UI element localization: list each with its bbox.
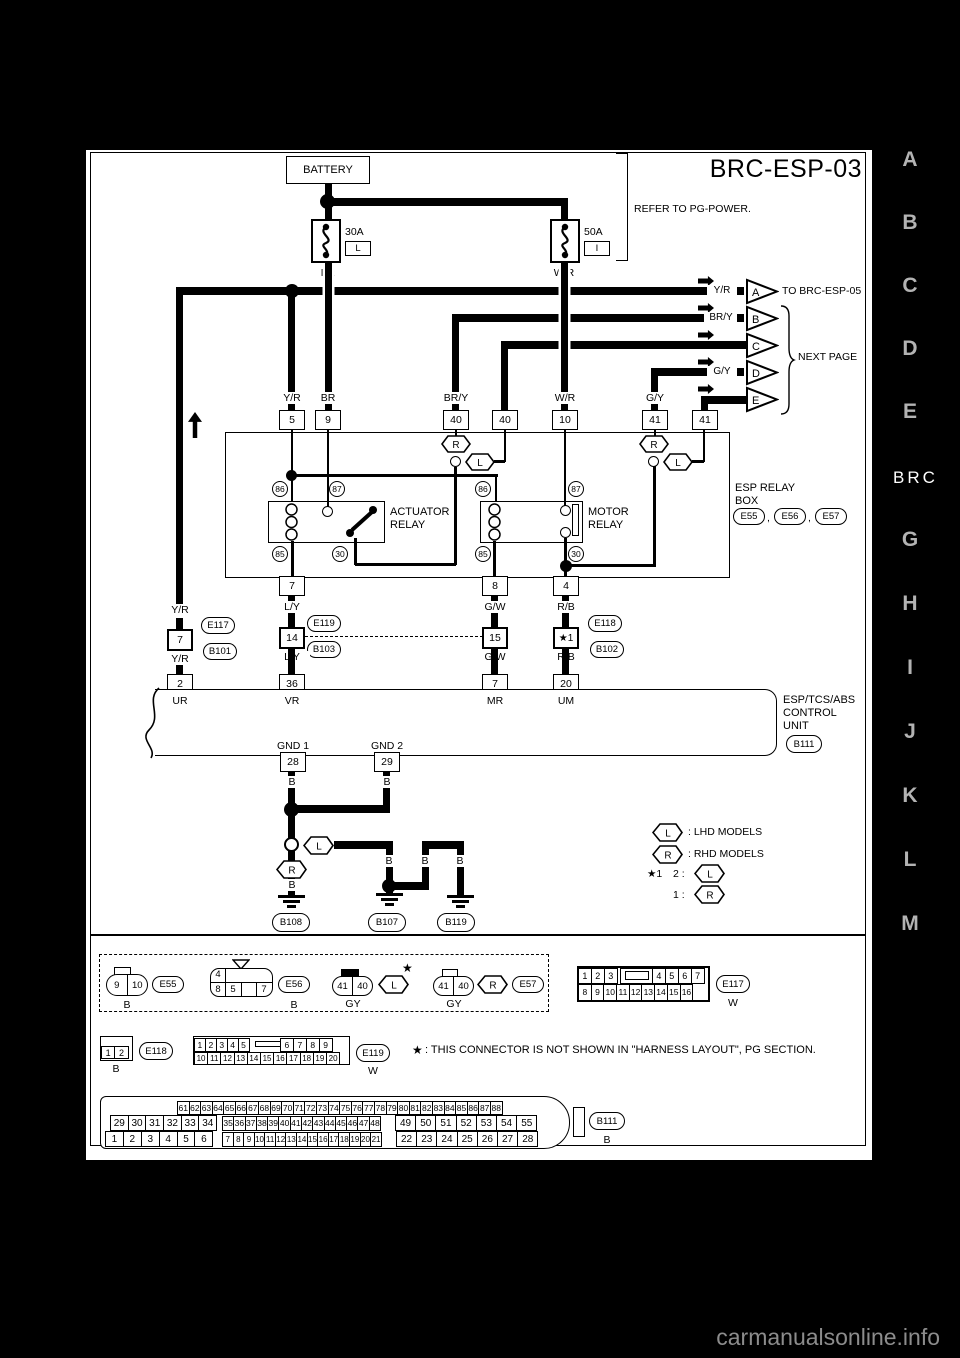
wire bbox=[495, 474, 497, 502]
relay-pin-85: 85 bbox=[272, 546, 288, 562]
next-page-label: NEXT PAGE bbox=[798, 351, 857, 363]
gnd-label: GND 2 bbox=[365, 740, 409, 752]
label-line: UNIT bbox=[783, 720, 809, 732]
pin-cell: 24 bbox=[436, 1131, 457, 1147]
pin-cell: 5 bbox=[665, 968, 679, 985]
wire-color-label: B bbox=[281, 776, 303, 788]
svg-text:L: L bbox=[665, 829, 671, 840]
connector-id: E55 bbox=[152, 976, 184, 993]
ground-icon bbox=[456, 905, 465, 908]
svg-text:R: R bbox=[664, 851, 671, 862]
watermark: carmanualsonline.info bbox=[650, 1324, 940, 1351]
pin-cell: 3 bbox=[604, 968, 618, 985]
label-line: RELAY bbox=[588, 519, 623, 531]
pin-cell: 50 bbox=[415, 1115, 436, 1131]
relay-pin-30: 30 bbox=[332, 546, 348, 562]
wire bbox=[325, 263, 332, 410]
wire bbox=[565, 564, 656, 567]
rhd-marker-icon: R bbox=[276, 860, 308, 879]
connector-junction bbox=[648, 456, 659, 467]
wire-color-label: Y/R bbox=[274, 392, 310, 404]
ground-icon bbox=[376, 893, 403, 896]
wire-color-label: B bbox=[414, 855, 436, 867]
pin-box: 8 bbox=[482, 576, 508, 596]
wire bbox=[561, 206, 568, 220]
svg-text:L: L bbox=[675, 458, 681, 469]
pin-cell: 1 bbox=[578, 968, 592, 985]
pin-cell: 30 bbox=[128, 1115, 147, 1131]
pin-box: 40 bbox=[443, 410, 469, 430]
pin-cell: 40 bbox=[453, 977, 473, 995]
cu-pin-label: VR bbox=[279, 695, 305, 707]
ground-id: B119 bbox=[437, 913, 475, 932]
pin-row: 12 bbox=[102, 1046, 129, 1059]
relay-contact-icon bbox=[322, 506, 333, 517]
wire bbox=[564, 430, 566, 506]
pin-cell: 32 bbox=[163, 1115, 182, 1131]
pin-cell: 13 bbox=[234, 1052, 248, 1065]
wire bbox=[653, 466, 656, 566]
offpage-connector-d: D bbox=[745, 359, 779, 386]
pin-cell: 11 bbox=[207, 1052, 221, 1065]
connector-id: E55 bbox=[733, 508, 765, 525]
label-line: BOX bbox=[735, 495, 758, 507]
wire-color-label: G/Y bbox=[707, 366, 737, 378]
sidebar-letter: J bbox=[888, 720, 932, 784]
ground-icon bbox=[385, 903, 394, 906]
pin-row: 8910111213141516 bbox=[579, 984, 693, 1001]
ground-icon bbox=[278, 895, 305, 898]
sidebar-letter: G bbox=[888, 528, 932, 592]
relay-pin-85: 85 bbox=[475, 546, 491, 562]
actuator-relay-label: ACTUATOR RELAY bbox=[390, 506, 450, 532]
connector-id: E117 bbox=[716, 975, 750, 993]
pin-cell: 2 bbox=[591, 968, 605, 985]
ground-icon bbox=[381, 898, 398, 901]
pin-cell: 27 bbox=[497, 1131, 518, 1147]
pin-cell: 6 bbox=[194, 1131, 213, 1147]
connector-color: GY bbox=[339, 998, 367, 1010]
switch-pivot bbox=[346, 529, 354, 537]
svg-text:L: L bbox=[391, 981, 397, 992]
svg-text:R: R bbox=[706, 891, 713, 902]
lhd-marker-icon: L bbox=[378, 975, 410, 994]
pin-row: 22232425262728 bbox=[397, 1131, 538, 1147]
lhd-marker-icon: L bbox=[465, 453, 495, 471]
pin-cell: 55 bbox=[516, 1115, 537, 1131]
fuse-slot-box: I bbox=[584, 241, 610, 256]
connector-pair-line bbox=[305, 636, 483, 637]
pin-cell: 31 bbox=[145, 1115, 164, 1131]
pin-cell: 14 bbox=[247, 1052, 261, 1065]
sidebar-index-top: ABCDE bbox=[888, 148, 932, 463]
pin-cell: 3 bbox=[141, 1131, 160, 1147]
pin-box: 7 bbox=[279, 576, 305, 596]
pin-cell: 52 bbox=[456, 1115, 477, 1131]
rhd-marker-icon: R bbox=[441, 435, 471, 453]
offpage-connector-a: A bbox=[745, 278, 779, 305]
connector-id: E56 bbox=[278, 976, 310, 993]
connector-id: E118 bbox=[139, 1042, 173, 1060]
sidebar-index-bottom: GHIJKLM bbox=[888, 528, 932, 976]
connector-id: B111 bbox=[589, 1112, 625, 1130]
lhd-marker-icon: L bbox=[303, 836, 335, 855]
legend-opt1: 1 : bbox=[673, 889, 685, 901]
fuse-slot-box: L bbox=[345, 241, 371, 256]
pin-cell: 19 bbox=[313, 1052, 327, 1065]
fuse-50a-icon bbox=[550, 219, 580, 263]
relay-pin-86: 86 bbox=[272, 481, 288, 497]
lhd-marker-icon: L bbox=[663, 453, 693, 471]
pin-box: 28 bbox=[280, 752, 306, 772]
pin-cell: 34 bbox=[198, 1115, 217, 1131]
wire-color-label: BR/Y bbox=[704, 312, 738, 324]
pin-cell: 6 bbox=[280, 1038, 294, 1052]
pin-cell: 20 bbox=[326, 1052, 340, 1065]
pin-cell: 26 bbox=[477, 1131, 498, 1147]
pin-cell: 10 bbox=[127, 975, 148, 995]
connector-id: E119 bbox=[356, 1044, 390, 1062]
pin-row: 293031323334 bbox=[111, 1115, 217, 1131]
wire-color-label: G/W bbox=[477, 601, 513, 613]
svg-text:R: R bbox=[650, 440, 657, 451]
pin-cell: 2 bbox=[123, 1131, 142, 1147]
svg-text:E: E bbox=[752, 395, 759, 407]
pin-cell: 51 bbox=[435, 1115, 456, 1131]
wire-color-label: W/R bbox=[547, 392, 583, 404]
battery-box: BATTERY bbox=[286, 156, 370, 184]
pin-cell: 9 bbox=[319, 1038, 333, 1052]
pin-row: 3536373839404142434445464748 bbox=[223, 1116, 381, 1131]
pin-cell: 7 bbox=[293, 1038, 307, 1052]
wire-end-icon bbox=[737, 314, 744, 322]
connector-junction bbox=[450, 456, 461, 467]
svg-text:R: R bbox=[288, 866, 295, 877]
wire bbox=[325, 206, 332, 220]
relay-pin-30: 30 bbox=[568, 546, 584, 562]
pin-cell: 40 bbox=[352, 977, 372, 995]
motor-relay-label: MOTOR RELAY bbox=[588, 506, 629, 532]
wire-color-label: BR bbox=[310, 392, 346, 404]
keyway-cell bbox=[255, 1041, 281, 1047]
wire bbox=[501, 341, 508, 410]
svg-text:A: A bbox=[752, 287, 760, 299]
connector-color: B bbox=[286, 999, 302, 1011]
break-squiggle-icon bbox=[141, 686, 163, 760]
pin-cell: 41 bbox=[333, 977, 352, 995]
ground-icon bbox=[283, 900, 300, 903]
pin-cell: 16 bbox=[273, 1052, 287, 1065]
wire bbox=[291, 430, 293, 502]
connector-color: B bbox=[598, 1134, 616, 1146]
pin-cell: 28 bbox=[517, 1131, 538, 1147]
gnd-label: GND 1 bbox=[271, 740, 315, 752]
connector-e55-face: 9 10 bbox=[106, 974, 148, 996]
pin-cell: 1 bbox=[105, 1131, 124, 1147]
wire bbox=[564, 538, 567, 578]
connector-id: B103 bbox=[307, 641, 341, 658]
pin-row: 789101112131415161718192021 bbox=[223, 1132, 382, 1147]
pin-box: 40 bbox=[492, 410, 518, 430]
pin-box: 4 bbox=[553, 576, 579, 596]
wire-color-label: L/Y bbox=[274, 601, 310, 613]
pin-cell: 15 bbox=[260, 1052, 274, 1065]
offpage-connector-e: E bbox=[745, 386, 779, 413]
offpage-connector-c: C bbox=[745, 332, 779, 359]
svg-text:D: D bbox=[752, 368, 760, 380]
legend-rhd: : RHD MODELS bbox=[688, 848, 764, 860]
grid-line bbox=[241, 982, 242, 997]
wire bbox=[422, 845, 429, 890]
pin-row: 6789 bbox=[281, 1038, 333, 1052]
star-marker: ★ bbox=[412, 1043, 423, 1057]
relay-coil-icon bbox=[284, 503, 299, 541]
wire bbox=[501, 341, 747, 349]
wire bbox=[355, 563, 456, 566]
switch-tip bbox=[369, 506, 377, 514]
wire-color-label: BR/Y bbox=[434, 392, 478, 404]
footnote: : THIS CONNECTOR IS NOT SHOWN IN "HARNES… bbox=[425, 1044, 816, 1057]
rhd-marker-icon: R bbox=[639, 435, 669, 453]
connector-color: W bbox=[365, 1065, 381, 1077]
pin-cell: 5 bbox=[177, 1131, 196, 1147]
svg-text:L: L bbox=[316, 842, 322, 853]
pin-cell: 9 bbox=[107, 975, 127, 995]
wire bbox=[291, 541, 294, 578]
wire bbox=[701, 396, 708, 410]
pin-box: 5 bbox=[279, 410, 305, 430]
pin-cell: 12 bbox=[220, 1052, 234, 1065]
wire bbox=[291, 474, 498, 477]
wire bbox=[458, 314, 707, 322]
wire-end-icon bbox=[737, 368, 744, 376]
connector-id: B102 bbox=[590, 641, 624, 658]
pin-box: 41 bbox=[692, 410, 718, 430]
relay-pin-86: 86 bbox=[475, 481, 491, 497]
pin-cell: 53 bbox=[476, 1115, 497, 1131]
wire-color-label: Y/R bbox=[162, 604, 198, 616]
pin-cell: 5 bbox=[238, 1038, 250, 1052]
pin-cell: 49 bbox=[395, 1115, 416, 1131]
pin-cell: 33 bbox=[181, 1115, 200, 1131]
sidebar-letter: H bbox=[888, 592, 932, 656]
pin-box: 7 bbox=[167, 629, 193, 651]
svg-text:R: R bbox=[489, 981, 496, 992]
control-unit-box bbox=[155, 689, 777, 756]
wire bbox=[327, 430, 329, 508]
brace-icon bbox=[778, 304, 796, 416]
svg-text:R: R bbox=[452, 440, 459, 451]
connector-id: E119 bbox=[307, 615, 341, 632]
wire bbox=[562, 649, 569, 676]
comma: , bbox=[808, 512, 811, 524]
pin-cell: 48 bbox=[369, 1116, 381, 1131]
pin-cell: 17 bbox=[286, 1052, 300, 1065]
sidebar-letter: A bbox=[888, 148, 932, 211]
ground-id: B107 bbox=[368, 913, 406, 932]
pin-cell: 8 bbox=[306, 1038, 320, 1052]
fuse-30a-icon bbox=[311, 219, 341, 263]
connector-face: 41 40 bbox=[332, 976, 373, 996]
pin-row: 1011121314151617181920 bbox=[195, 1052, 340, 1065]
connector-color: W bbox=[724, 997, 742, 1009]
wire bbox=[176, 295, 183, 605]
wire-color-label: B bbox=[376, 776, 398, 788]
page-title: BRC-ESP-03 bbox=[540, 155, 862, 184]
lhd-marker-icon: L bbox=[652, 823, 684, 842]
pin-cell: 5 bbox=[226, 984, 240, 995]
refer-bracket bbox=[616, 153, 628, 261]
sidebar-letter: C bbox=[888, 274, 932, 337]
refer-note: REFER TO PG-POWER. bbox=[634, 203, 751, 215]
pin-cell: 88 bbox=[490, 1101, 503, 1115]
manual-page: BRC-ESP-03 ABCDE BRC GHIJKLM carmanualso… bbox=[0, 0, 960, 1358]
pin-cell: 41 bbox=[434, 977, 453, 995]
cu-pin-label: UR bbox=[167, 695, 193, 707]
wire-end-icon bbox=[737, 287, 744, 295]
legend-opt2: 2 : bbox=[673, 868, 685, 880]
wire bbox=[493, 541, 496, 578]
pin-cell: 22 bbox=[396, 1131, 417, 1147]
control-unit-name: ESP/TCS/ABS CONTROL UNIT bbox=[783, 694, 855, 733]
sidebar-letter: K bbox=[888, 784, 932, 848]
pin-cell: 1 bbox=[101, 1046, 116, 1059]
connector-color: GY bbox=[440, 998, 468, 1010]
offpage-destination: TO BRC-ESP-05 bbox=[782, 285, 861, 297]
cu-pin-label: UM bbox=[553, 695, 579, 707]
connector-id: E57 bbox=[512, 976, 544, 993]
wire bbox=[176, 287, 707, 295]
ground-icon bbox=[447, 895, 474, 898]
legend-star: ★1 bbox=[647, 868, 662, 880]
keyway-cell bbox=[620, 968, 654, 985]
label-line: ESP/TCS/ABS bbox=[783, 694, 855, 706]
sidebar-section-label: BRC bbox=[893, 468, 938, 488]
svg-text:L: L bbox=[477, 458, 483, 469]
label-line: CONTROL bbox=[783, 707, 837, 719]
label-line: MOTOR bbox=[588, 506, 629, 518]
connector-id: B101 bbox=[203, 643, 237, 660]
lhd-marker-icon: L bbox=[694, 864, 726, 883]
wire-color-label: B bbox=[378, 855, 400, 867]
pin-cell: 4 bbox=[652, 968, 666, 985]
connector-latch bbox=[573, 1107, 585, 1137]
wire bbox=[703, 430, 705, 462]
section-divider bbox=[90, 934, 866, 936]
pin-box: 29 bbox=[374, 752, 400, 772]
pin-cell: 25 bbox=[457, 1131, 478, 1147]
rhd-marker-icon: R bbox=[694, 885, 726, 904]
wire bbox=[292, 805, 390, 813]
comma: , bbox=[767, 512, 770, 524]
label-line: ACTUATOR bbox=[390, 506, 450, 518]
pin-box: 15 bbox=[482, 627, 508, 649]
relay-pin-87: 87 bbox=[329, 481, 345, 497]
wire-color-label: B bbox=[281, 879, 303, 891]
rhd-marker-icon: R bbox=[477, 975, 509, 994]
sidebar-letter: B bbox=[888, 211, 932, 274]
wire bbox=[176, 618, 183, 629]
pin-box: 10 bbox=[552, 410, 578, 430]
fuse-amp-label: 30A bbox=[345, 226, 364, 238]
pin-cell: 7 bbox=[257, 984, 271, 995]
relay-contact-icon bbox=[560, 505, 571, 516]
legend-lhd: : LHD MODELS bbox=[688, 826, 762, 838]
cu-pin-label: MR bbox=[482, 695, 508, 707]
wire-color-label: B bbox=[449, 855, 471, 867]
pin-cell: 21 bbox=[370, 1132, 382, 1147]
relay-box-name: ESP RELAY BOX bbox=[735, 482, 795, 508]
pin-cell: 10 bbox=[194, 1052, 208, 1065]
pin-box: 41 bbox=[642, 410, 668, 430]
pin-cell: 29 bbox=[110, 1115, 129, 1131]
junction-dot bbox=[285, 284, 299, 298]
pin-row: 123 bbox=[579, 968, 618, 985]
connector-color: B bbox=[119, 999, 135, 1011]
wire bbox=[325, 198, 568, 206]
pin-cell: 8 bbox=[211, 984, 225, 995]
contact-bar-icon bbox=[572, 504, 579, 536]
wire-color-label: R/B bbox=[548, 601, 584, 613]
pin-cell: 2 bbox=[114, 1046, 129, 1059]
pin-cell: 54 bbox=[496, 1115, 517, 1131]
offpage-connector-b: B bbox=[745, 305, 779, 332]
wire-color-label: G/Y bbox=[637, 392, 673, 404]
wire bbox=[651, 368, 707, 376]
sidebar-letter: L bbox=[888, 848, 932, 912]
ground-id: B108 bbox=[272, 913, 310, 932]
junction-dot bbox=[284, 802, 299, 817]
pin-cell: 23 bbox=[416, 1131, 437, 1147]
sidebar-letter: M bbox=[888, 912, 932, 976]
pin-cell: 18 bbox=[300, 1052, 314, 1065]
pin-cell: 7 bbox=[691, 968, 705, 985]
pin-cell: 16 bbox=[680, 984, 694, 1001]
pin-row: 123456 bbox=[106, 1131, 213, 1147]
wire-color-label: Y/R bbox=[707, 285, 737, 297]
pin-box: 14 bbox=[279, 627, 305, 649]
connector-id: E118 bbox=[588, 615, 622, 632]
pin-cell: 4 bbox=[159, 1131, 178, 1147]
connector-color: B bbox=[108, 1063, 124, 1075]
pin-cell: 4 bbox=[211, 969, 225, 980]
connector-id: E57 bbox=[815, 508, 847, 525]
wire bbox=[454, 467, 457, 565]
relay-contact-icon bbox=[560, 527, 571, 538]
pin-row: 4567 bbox=[653, 968, 705, 985]
wire bbox=[457, 841, 464, 895]
label-line: ESP RELAY bbox=[735, 482, 795, 494]
star-marker: ★ bbox=[402, 961, 413, 975]
wire bbox=[561, 263, 568, 410]
svg-text:C: C bbox=[752, 341, 760, 353]
relay-coil-icon bbox=[487, 503, 502, 541]
sidebar-letter: D bbox=[888, 337, 932, 400]
wire bbox=[334, 841, 393, 849]
svg-text:B: B bbox=[752, 314, 759, 326]
connector-id: B111 bbox=[786, 735, 822, 753]
connector-face: 41 40 bbox=[433, 976, 474, 996]
wire bbox=[491, 649, 498, 676]
wire bbox=[288, 649, 295, 676]
connector-id: E117 bbox=[201, 617, 235, 634]
wire bbox=[504, 430, 506, 462]
connector-id: E56 bbox=[774, 508, 806, 525]
wire-color-label: Y/R bbox=[162, 653, 198, 665]
pin-box: ★1 bbox=[553, 627, 579, 649]
rhd-marker-icon: R bbox=[652, 845, 684, 864]
sidebar-letter: E bbox=[888, 400, 932, 463]
